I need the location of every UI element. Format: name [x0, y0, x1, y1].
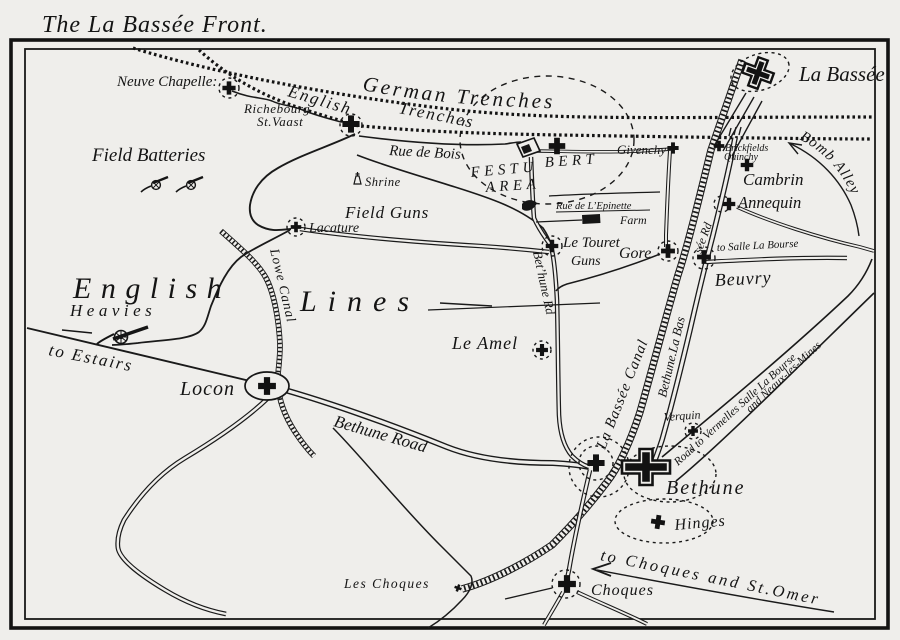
svg-text:Annequin: Annequin — [737, 193, 801, 212]
svg-text:Beuvry: Beuvry — [714, 267, 772, 290]
svg-text:Lines: Lines — [299, 285, 420, 318]
svg-text:Verquin: Verquin — [663, 407, 701, 424]
svg-text:Heavies: Heavies — [69, 301, 156, 320]
svg-text:Bethune: Bethune — [666, 477, 746, 499]
svg-text:Quinchy: Quinchy — [724, 152, 758, 163]
svg-text:Field Guns: Field Guns — [344, 203, 429, 222]
svg-text:Field Batteries: Field Batteries — [91, 145, 205, 166]
svg-text:Les Choques: Les Choques — [343, 576, 430, 591]
svg-text:Choques: Choques — [591, 582, 654, 599]
svg-text:Cambrin: Cambrin — [743, 170, 803, 189]
svg-text:St.Vaast: St.Vaast — [257, 114, 303, 129]
svg-text:The La Bassée Front.: The La Bassée Front. — [42, 12, 268, 38]
svg-text:Locon: Locon — [179, 378, 235, 400]
svg-text:Shrine: Shrine — [365, 175, 401, 189]
svg-text:Lacature: Lacature — [308, 221, 359, 236]
svg-text:Farm: Farm — [619, 213, 647, 227]
svg-text:Le Touret: Le Touret — [562, 235, 621, 251]
svg-text:Givenchy: Givenchy — [617, 142, 666, 157]
svg-text:Le Amel: Le Amel — [451, 333, 518, 353]
svg-text:Guns: Guns — [571, 254, 601, 269]
svg-text:Gore: Gore — [619, 245, 651, 262]
svg-text:La Bassée: La Bassée — [798, 62, 885, 86]
svg-text:Neuve Chapelle:: Neuve Chapelle: — [116, 74, 217, 90]
